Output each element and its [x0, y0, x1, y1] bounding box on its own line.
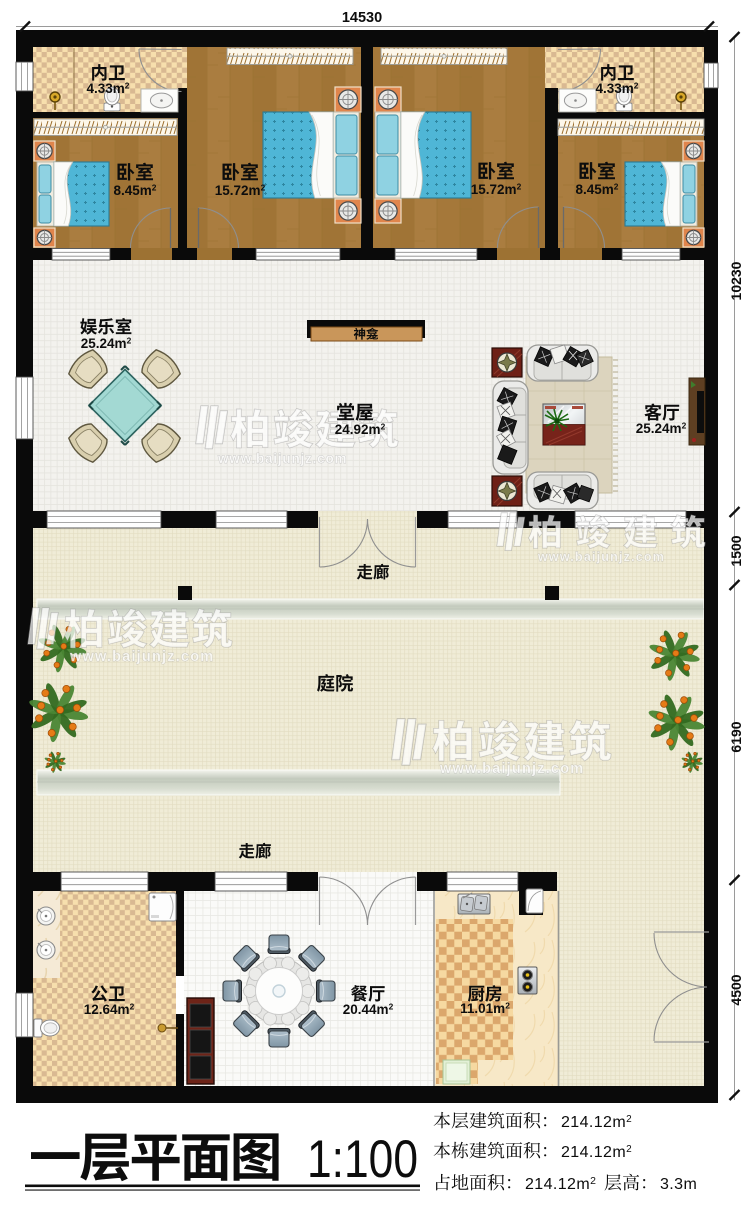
svg-text:4.33m2: 4.33m2 — [596, 81, 639, 96]
svg-text:4500: 4500 — [728, 974, 744, 1005]
svg-text:214.12m2: 214.12m2 — [561, 1144, 632, 1161]
svg-text:4.33m2: 4.33m2 — [87, 81, 130, 96]
svg-text:25.24m2: 25.24m2 — [81, 336, 132, 351]
svg-text:15.72m2: 15.72m2 — [471, 182, 522, 197]
svg-text:214.12m2: 214.12m2 — [525, 1175, 596, 1193]
svg-text:10230: 10230 — [728, 261, 744, 300]
svg-text:12.64m2: 12.64m2 — [84, 1002, 135, 1017]
svg-text:1500: 1500 — [728, 535, 744, 566]
svg-text:www.baijunjz.com: www.baijunjz.com — [69, 649, 214, 665]
svg-text:20.44m2: 20.44m2 — [343, 1002, 394, 1017]
svg-text:6190: 6190 — [728, 721, 744, 752]
svg-text:www.baijunjz.com: www.baijunjz.com — [217, 451, 347, 466]
svg-text:8.45m2: 8.45m2 — [576, 182, 619, 197]
svg-text:www.baijunjz.com: www.baijunjz.com — [537, 550, 665, 564]
svg-text:24.92m2: 24.92m2 — [335, 422, 386, 437]
svg-text:3.3m: 3.3m — [660, 1176, 697, 1193]
svg-text:14530: 14530 — [342, 10, 382, 26]
svg-text:1:100: 1:100 — [307, 1130, 418, 1189]
svg-text:214.12m2: 214.12m2 — [561, 1114, 632, 1131]
svg-text:www.baijunjz.com: www.baijunjz.com — [439, 761, 584, 777]
svg-text:8.45m2: 8.45m2 — [114, 183, 157, 198]
svg-text:15.72m2: 15.72m2 — [215, 183, 266, 198]
svg-text:11.01m2: 11.01m2 — [460, 1001, 510, 1016]
svg-text:25.24m2: 25.24m2 — [636, 421, 687, 436]
